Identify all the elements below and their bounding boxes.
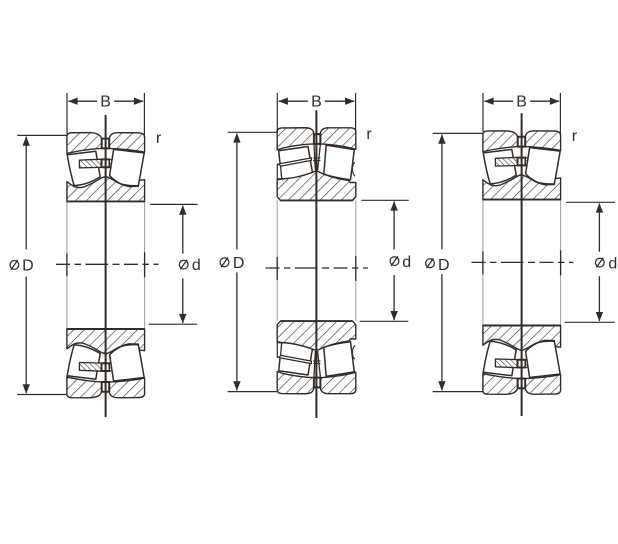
svg-text:r: r bbox=[366, 126, 372, 143]
svg-text:r: r bbox=[572, 128, 578, 145]
svg-text:D: D bbox=[233, 255, 245, 272]
svg-text:D: D bbox=[438, 257, 450, 274]
svg-text:d: d bbox=[608, 256, 617, 273]
svg-text:B: B bbox=[311, 94, 322, 111]
svg-text:D: D bbox=[22, 258, 34, 275]
svg-text:d: d bbox=[192, 257, 201, 274]
svg-text:d: d bbox=[402, 254, 411, 271]
svg-text:B: B bbox=[100, 94, 111, 111]
svg-text:B: B bbox=[516, 94, 527, 111]
svg-text:r: r bbox=[156, 130, 162, 147]
